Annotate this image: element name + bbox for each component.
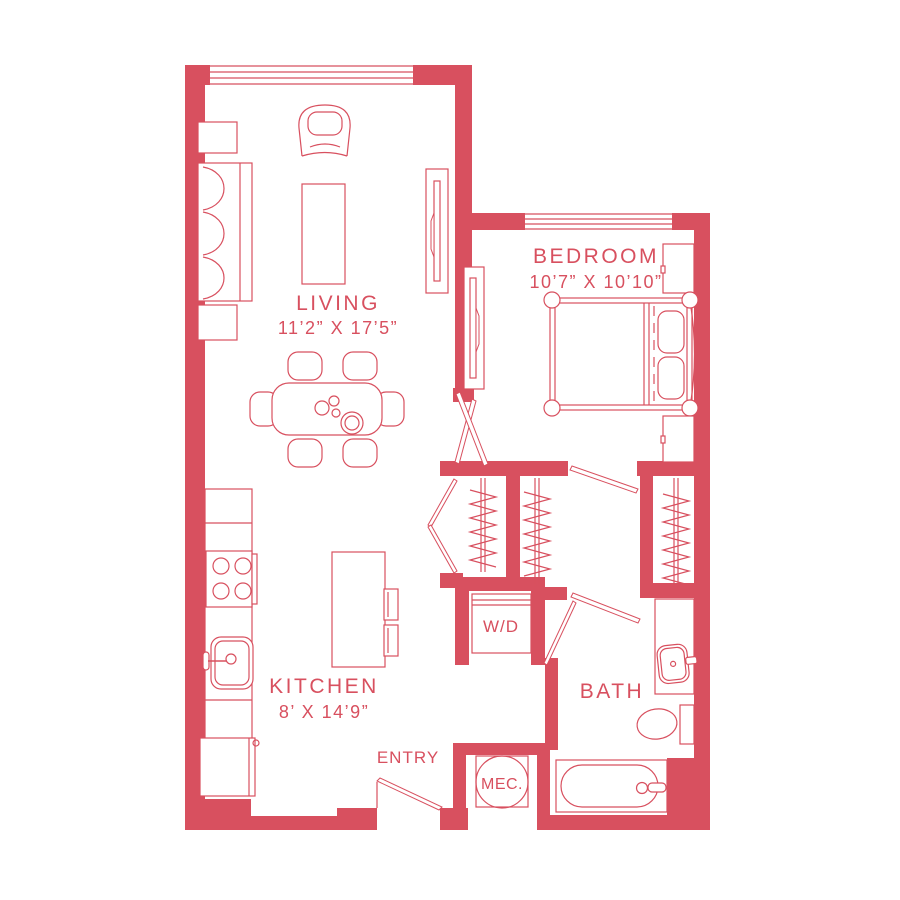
door-leaf (570, 466, 638, 493)
armchair (299, 105, 350, 156)
dining-chair (288, 352, 322, 380)
wall-segment (637, 461, 694, 476)
wall-segment (545, 587, 567, 600)
bifold-door (428, 479, 457, 527)
dining-chair (343, 352, 377, 380)
floor-plan-svg: LIVING 11’2” X 17’5” BEDROOM 10’7” X 10’… (0, 0, 900, 900)
coffee-table (302, 184, 345, 284)
kitchen-label: KITCHEN (269, 675, 379, 698)
end-table (198, 122, 237, 153)
bed-post (682, 292, 698, 308)
wall-segment (640, 476, 653, 583)
wall-segment (185, 799, 251, 830)
wall-segment (472, 213, 525, 230)
wall-segment (550, 815, 710, 830)
closet-rod (470, 478, 496, 572)
nightstand (663, 244, 694, 293)
living-room-label: LIVING (296, 292, 380, 315)
bedroom-label: BEDROOM (533, 245, 659, 268)
kitchen (200, 489, 398, 796)
bed (544, 292, 698, 416)
wall-segment (337, 808, 377, 830)
wall-segment (453, 743, 550, 755)
laundry-label: W/D (483, 617, 519, 636)
living-room-dimensions: 11’2” X 17’5” (278, 318, 398, 338)
closet-rod (524, 478, 550, 584)
pillow (658, 357, 684, 399)
toilet (635, 705, 694, 744)
mechanical-label: MEC. (481, 776, 523, 793)
sofa (198, 163, 252, 301)
wall-segment (531, 577, 545, 665)
door-leaf (544, 601, 576, 665)
door-leaf (571, 593, 640, 623)
drawer-pull (661, 436, 665, 443)
door-leaf (377, 778, 442, 810)
kitchen-dimensions: 8’ X 14’9” (279, 702, 369, 722)
bathtub (556, 760, 667, 812)
pillow (658, 311, 684, 353)
wall-segment (537, 743, 550, 830)
wall-segment (185, 65, 210, 85)
wall-segment (506, 476, 520, 577)
tv-console-living (426, 169, 448, 293)
wall-segment (640, 583, 694, 598)
bedroom-dimensions: 10’7” X 10’10” (529, 272, 662, 292)
bar-stool (384, 625, 398, 656)
bed-post (544, 292, 560, 308)
living-window (210, 66, 413, 84)
bath-label: BATH (580, 680, 644, 703)
wall-segment (413, 65, 472, 85)
wall-segment (251, 816, 337, 830)
closet-rod (663, 478, 689, 590)
stove (206, 551, 257, 607)
bed-post (682, 400, 698, 416)
bed-post (544, 400, 560, 416)
refrigerator (200, 738, 259, 796)
end-table (198, 305, 237, 340)
dining-chair (288, 439, 322, 467)
bifold-door (428, 525, 457, 573)
bar-stool (384, 589, 398, 620)
living-room (198, 105, 448, 467)
nightstand (663, 416, 694, 462)
dining-chair (343, 439, 377, 467)
floor-plan-page: LIVING 11’2” X 17’5” BEDROOM 10’7” X 10’… (0, 0, 900, 900)
wall-segment (440, 808, 468, 830)
kitchen-island (332, 552, 398, 667)
wall-segment (455, 577, 469, 665)
tv-console-bedroom (464, 267, 484, 389)
dining-table-set (250, 352, 404, 467)
bedroom-window (525, 214, 672, 229)
wall-segment (545, 658, 558, 750)
dining-table (272, 383, 382, 435)
entry-label: ENTRY (377, 748, 439, 767)
